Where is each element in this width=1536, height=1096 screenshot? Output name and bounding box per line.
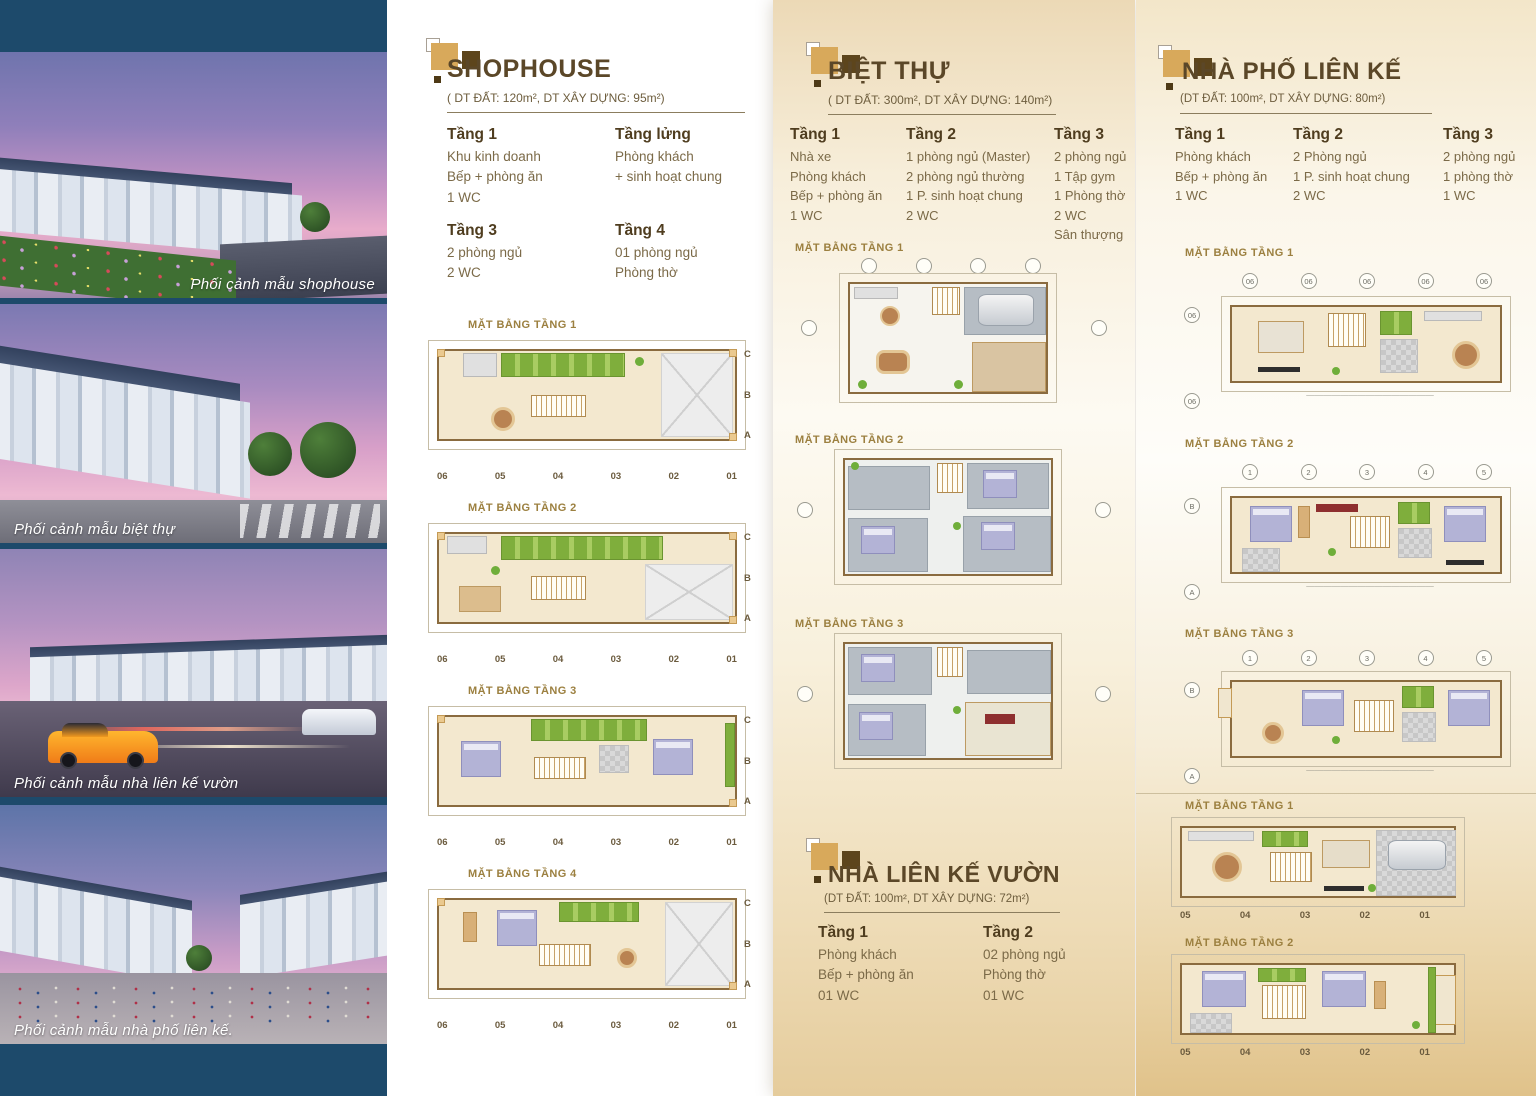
stairs [531, 576, 586, 600]
shophouse-floor-list: Tầng 1 Khu kinh doanh Bếp + phòng ăn 1 W… [447, 126, 755, 283]
floor-title: Tầng 1 [447, 126, 615, 144]
floor-rooms: 02 phòng ngủ Phòng thờ 01 WC [983, 945, 1123, 1006]
car-wheel [127, 752, 144, 769]
photo-shophouse-render: Phối cảnh mẫu shophouse [0, 52, 387, 298]
grid-label: B [744, 756, 751, 767]
grid-axis-numbers: 060504030201 [437, 654, 737, 665]
stairs [1350, 516, 1390, 548]
floor-rooms: Nhà xe Phòng khách Bếp + phòng ăn 1 WC [790, 147, 906, 225]
grid-axis-numbers: 060504030201 [437, 1020, 737, 1031]
plant [953, 522, 961, 530]
grid-label: 06 [1418, 273, 1434, 289]
grid-label: 5 [1476, 464, 1492, 480]
floor-title: Tầng 2 [1293, 126, 1443, 144]
plan-floor [437, 715, 737, 807]
grid-axis-letters: CBA [744, 715, 751, 807]
plan-label: MẶT BẰNG TẦNG 2 [795, 434, 904, 446]
plan-label: MẶT BẰNG TẦNG 3 [1185, 628, 1294, 640]
floor-rooms: Phòng khách Bếp + phòng ăn 1 WC [1175, 147, 1293, 206]
plant [635, 357, 644, 366]
tv-console [1446, 560, 1484, 565]
grid-bubbles-left: BA [1184, 682, 1200, 784]
floor-block: Tầng lửng Phòng khách + sinh hoạt chung [615, 126, 755, 208]
kitchen [1424, 311, 1482, 321]
section-marker [797, 502, 813, 542]
dining-table [1452, 341, 1480, 369]
floorplan-bietthu-t2: MẶT BẰNG TẦNG 2 [773, 432, 1135, 622]
grid-axis-numbers: 060504030201 [437, 471, 737, 482]
dining-table [876, 350, 910, 374]
section-divider [1136, 793, 1536, 794]
bed [983, 470, 1017, 498]
grid-label: 04 [1240, 1047, 1251, 1058]
grid-label: 03 [611, 654, 622, 665]
tiny-square-icon [814, 876, 821, 883]
grid-axis-numbers: 060504030201 [437, 837, 737, 848]
balcony-planter [1428, 967, 1436, 1033]
plan-floor [437, 532, 737, 624]
subtitle-rule [447, 112, 745, 113]
tree [300, 202, 330, 232]
photo-lienkevuon-render: Phối cảnh mẫu nhà liên kế vườn [0, 549, 387, 797]
floorplan-lienkevuon-t2: MẶT BẰNG TẦNG 2 0504030201 [1150, 935, 1536, 1075]
plan-floor [1230, 305, 1502, 383]
grid-label: C [744, 898, 751, 909]
dining-table [1212, 852, 1242, 882]
bed [981, 522, 1015, 550]
grid-label: 01 [1419, 910, 1430, 921]
grid-label: 01 [726, 1020, 737, 1031]
grid-label: 06 [1184, 307, 1200, 323]
section-marker [797, 686, 813, 726]
grid-label: 06 [1301, 273, 1317, 289]
floorplan-bietthu-t1: MẶT BẰNG TẦNG 1 [773, 240, 1135, 430]
grid-label: 03 [611, 837, 622, 848]
bed [497, 910, 537, 946]
floor-block: Tầng 3 2 phòng ngủ 2 WC [447, 222, 615, 284]
plan-floor [437, 349, 737, 441]
nhapho-floor-list: Tầng 1 Phòng khách Bếp + phòng ăn 1 WC T… [1175, 126, 1530, 206]
white-car [302, 709, 376, 735]
photo-nhapho-render: Phối cảnh mẫu nhà phố liên kế. [0, 805, 387, 1044]
dimension-line: ────────────────────────────── [1240, 768, 1500, 774]
plan-floor [437, 898, 737, 990]
photo-caption: Phối cảnh mẫu shophouse [190, 276, 375, 293]
skylight-garden [1258, 968, 1306, 982]
plant [1328, 548, 1336, 556]
grid-label: 05 [495, 471, 506, 482]
grid-label: 03 [611, 471, 622, 482]
section-title-lienkevuon: NHÀ LIÊN KẾ VƯỜN [828, 861, 1060, 888]
stairs [1328, 313, 1366, 347]
plan-label: MẶT BẰNG TẦNG 3 [795, 618, 904, 630]
subtitle-rule [1180, 113, 1432, 114]
dimension-line: ────────────────────────────── [1240, 393, 1500, 399]
floorplan-shophouse-t3: MẶT BẰNG TẦNG 3 060504030201 CBA [420, 681, 755, 856]
grid-label: 06 [437, 471, 448, 482]
bathroom-tile [1402, 712, 1436, 742]
floorplan-shophouse-t1: MẶT BẰNG TẦNG 1 060504030201 CBA [420, 315, 755, 490]
floor-title: Tầng 4 [615, 222, 755, 240]
balcony [1434, 975, 1456, 1025]
plant [954, 380, 963, 389]
section-subtitle: (DT ĐẤT: 100m², DT XÂY DỰNG: 80m²) [1180, 93, 1385, 105]
tiny-square-icon [434, 76, 441, 83]
subtitle-rule [824, 912, 1060, 913]
kitchen [854, 287, 898, 299]
lienkevuon-floor-list: Tầng 1 Phòng khách Bếp + phòng ăn 01 WC … [818, 924, 1128, 1006]
section-marker [801, 320, 817, 360]
photo-bietthu-render: Phối cảnh mẫu biệt thự [0, 304, 387, 543]
plan-floor [843, 642, 1053, 760]
floor-block: Tầng 1 Nhà xe Phòng khách Bếp + phòng ăn… [790, 126, 906, 245]
tv-console [1258, 367, 1300, 372]
grid-label: B [744, 939, 751, 950]
plan-floor [1180, 963, 1456, 1035]
floor-title: Tầng 2 [983, 924, 1123, 942]
floor-block: Tầng 3 2 phòng ngủ 1 phòng thờ 1 WC [1443, 126, 1528, 206]
wall-pier [437, 349, 445, 357]
floor-rooms: 1 phòng ngủ (Master) 2 phòng ngủ thường … [906, 147, 1054, 225]
plant [1368, 884, 1376, 892]
tree [300, 422, 356, 478]
wall-pier [437, 898, 445, 906]
stairs [539, 944, 591, 966]
stairs [1270, 852, 1312, 882]
floorplan-lienkevuon-t1: MẶT BẰNG TẦNG 1 0504030201 [1150, 798, 1536, 938]
grid-label: B [1184, 682, 1200, 698]
grid-label: A [1184, 768, 1200, 784]
floor-rooms: Phòng khách Bếp + phòng ăn 01 WC [818, 945, 983, 1006]
floorplan-nhapho-t2: MẶT BẰNG TẦNG 2 12345 BA ───────────────… [1150, 436, 1536, 616]
grid-label: 04 [553, 1020, 564, 1031]
wall-pier [729, 349, 737, 357]
small-table [880, 306, 900, 326]
altar-table [1262, 722, 1284, 744]
grid-axis-numbers: 0504030201 [1180, 910, 1430, 921]
grid-label: 01 [1419, 1047, 1430, 1058]
floor-rooms: Khu kinh doanh Bếp + phòng ăn 1 WC [447, 147, 615, 208]
bed [859, 712, 893, 740]
bed [861, 526, 895, 554]
tv-console [1324, 886, 1364, 891]
grid-label: 06 [1242, 273, 1258, 289]
kitchen [463, 353, 497, 377]
plant [1332, 367, 1340, 375]
bathroom-tile [1190, 1013, 1232, 1033]
photo-caption: Phối cảnh mẫu biệt thự [14, 521, 175, 538]
garden-strip [531, 719, 647, 741]
balcony [1218, 688, 1232, 718]
crosswalk [240, 504, 380, 538]
grid-label: C [744, 349, 751, 360]
plan-floor [843, 458, 1053, 576]
floor-rooms: 2 phòng ngủ 1 phòng thờ 1 WC [1443, 147, 1528, 206]
grid-label: B [1184, 498, 1200, 514]
floor-rooms: 01 phòng ngủ Phòng thờ [615, 243, 755, 284]
grid-label: 03 [1300, 1047, 1311, 1058]
grid-label: 04 [553, 471, 564, 482]
grid-bubbles [861, 258, 1041, 274]
grid-label: 02 [1360, 1047, 1371, 1058]
photo-caption: Phối cảnh mẫu nhà phố liên kế. [14, 1022, 233, 1039]
study-room [972, 342, 1046, 392]
plant [858, 380, 867, 389]
grid-label: 02 [669, 837, 680, 848]
floorplan-nhapho-t1: MẶT BẰNG TẦNG 1 0606060606 0606 ────────… [1150, 245, 1536, 420]
stairs [1354, 700, 1394, 732]
grid-label: 2 [1301, 650, 1317, 666]
floor-block: Tầng 4 01 phòng ngủ Phòng thờ [615, 222, 755, 284]
brochure-page: Phối cảnh mẫu shophouse Phối cảnh mẫu bi… [0, 0, 1536, 1096]
grid-bubbles-left: 0606 [1184, 307, 1200, 409]
plan-label: MẶT BẰNG TẦNG 2 [468, 502, 577, 514]
grid-axis-letters: CBA [744, 898, 751, 990]
sofa [459, 586, 501, 612]
grid-axis-letters: CBA [744, 349, 751, 441]
grid-label: 05 [1180, 910, 1191, 921]
bathroom-tile [1242, 548, 1280, 572]
floor-title: Tầng 1 [790, 126, 906, 144]
kitchen [1188, 831, 1254, 841]
grid-label: 04 [553, 837, 564, 848]
section-title-shophouse: SHOPHOUSE [447, 55, 611, 84]
grid-label: A [1184, 584, 1200, 600]
grid-label: 4 [1418, 464, 1434, 480]
garden-strip [559, 902, 639, 922]
section-title-bietthu: BIỆT THỰ [828, 57, 950, 86]
car [978, 294, 1034, 326]
grid-label: 01 [726, 471, 737, 482]
grid-label: 06 [437, 1020, 448, 1031]
floor-rooms: 2 phòng ngủ 1 Tập gym 1 Phòng thờ 2 WC S… [1054, 147, 1134, 245]
floorplan-nhapho-t3: MẶT BẰNG TẦNG 3 12345 BA ───────────────… [1150, 626, 1536, 801]
front-yard [661, 353, 733, 437]
section-title-nhapho: NHÀ PHỐ LIÊN KẾ [1182, 58, 1402, 86]
tiny-square-icon [814, 80, 821, 87]
bed [861, 654, 895, 682]
grid-label: A [744, 979, 751, 990]
bed [1444, 506, 1486, 542]
floor-rooms: 2 phòng ngủ 2 WC [447, 243, 615, 284]
grid-label: 05 [495, 837, 506, 848]
grid-label: 05 [495, 1020, 506, 1031]
section-marker [1091, 320, 1107, 360]
wardrobe [463, 912, 477, 942]
orange-sports-car [48, 731, 158, 763]
grid-label: C [744, 715, 751, 726]
plan-floor [848, 282, 1048, 394]
void-open-below [645, 564, 733, 620]
wall-pier [729, 616, 737, 624]
grid-label: 06 [1476, 273, 1492, 289]
wall-pier [437, 715, 445, 723]
living-sofa [1322, 840, 1370, 868]
grid-label: 06 [1359, 273, 1375, 289]
floorplan-shophouse-t4: MẶT BẰNG TẦNG 4 060504030201 CBA [420, 864, 755, 1039]
floorplan-shophouse-t2: MẶT BẰNG TẦNG 2 060504030201 CBA [420, 498, 755, 673]
bathroom-tile [599, 745, 629, 773]
shelf [1316, 504, 1358, 512]
floor-rooms: 2 Phòng ngủ 1 P. sinh hoạt chung 2 WC [1293, 147, 1443, 206]
stairs [932, 287, 960, 315]
car [1388, 840, 1446, 870]
wall-pier [729, 982, 737, 990]
dining-table [491, 407, 515, 431]
bed [1322, 971, 1366, 1007]
grid-label: 03 [611, 1020, 622, 1031]
grid-label: A [744, 430, 751, 441]
grid-label: A [744, 796, 751, 807]
plant [1332, 736, 1340, 744]
bed [461, 741, 501, 777]
floor-rooms: Phòng khách + sinh hoạt chung [615, 147, 755, 188]
floor-title: Tầng 1 [818, 924, 983, 942]
floor-block: Tầng 1 Phòng khách Bếp + phòng ăn 1 WC [1175, 126, 1293, 206]
terrace [665, 902, 733, 986]
gym-room [967, 650, 1051, 694]
bed [1448, 690, 1490, 726]
stairs [937, 647, 963, 677]
dimension-line: ────────────────────────────── [1240, 584, 1500, 590]
pantry [447, 536, 487, 554]
stairs [531, 395, 586, 417]
plan-label: MẶT BẰNG TẦNG 2 [1185, 438, 1294, 450]
grid-label: A [744, 613, 751, 624]
grid-label: 06 [437, 837, 448, 848]
wall-pier [437, 532, 445, 540]
grid-label: 1 [1242, 650, 1258, 666]
floor-title: Tầng 3 [447, 222, 615, 240]
grid-label: 01 [726, 837, 737, 848]
floor-title: Tầng 1 [1175, 126, 1293, 144]
wardrobe [1298, 506, 1310, 538]
floor-block: Tầng 1 Phòng khách Bếp + phòng ăn 01 WC [818, 924, 983, 1006]
worship-room [965, 702, 1051, 756]
altar-table [617, 948, 637, 968]
floor-title: Tầng 3 [1054, 126, 1134, 144]
bietthu-floor-list: Tầng 1 Nhà xe Phòng khách Bếp + phòng ăn… [790, 126, 1135, 245]
skylight-garden [1398, 502, 1430, 524]
section-subtitle: (DT ĐẤT: 100m², DT XÂY DỰNG: 72m²) [824, 893, 1029, 905]
plan-label: MẶT BẰNG TẦNG 1 [1185, 800, 1294, 812]
section-subtitle: ( DT ĐẤT: 300m², DT XÂY DỰNG: 140m²) [828, 93, 1052, 107]
stairs [1262, 985, 1306, 1019]
floor-block: Tầng 2 02 phòng ngủ Phòng thờ 01 WC [983, 924, 1123, 1006]
floor-block: Tầng 3 2 phòng ngủ 1 Tập gym 1 Phòng thờ… [1054, 126, 1134, 245]
grid-label: C [744, 532, 751, 543]
bedroom-suite [1258, 321, 1304, 353]
car-wheel [60, 752, 77, 769]
garden-strip [501, 536, 663, 560]
subtitle-rule [828, 114, 1056, 115]
plan-label: MẶT BẰNG TẦNG 4 [468, 868, 577, 880]
grid-axis-numbers: 0504030201 [1180, 1047, 1430, 1058]
tree [186, 945, 212, 971]
section-subtitle: ( DT ĐẤT: 120m², DT XÂY DỰNG: 95m²) [447, 91, 665, 105]
balcony-planter [725, 723, 735, 787]
floorplan-bietthu-t3: MẶT BẰNG TẦNG 3 [773, 616, 1135, 806]
section-marker [1095, 686, 1111, 726]
plant [491, 566, 500, 575]
plant [953, 706, 961, 714]
pedestrians [10, 985, 380, 1025]
grid-label: 05 [495, 654, 506, 665]
grid-label: 01 [726, 654, 737, 665]
tree [248, 432, 292, 476]
bedroom [848, 466, 930, 510]
plan-label: MẶT BẰNG TẦNG 1 [1185, 247, 1294, 259]
floor-title: Tầng 3 [1443, 126, 1528, 144]
wardrobe [1374, 981, 1386, 1009]
floor-title: Tầng 2 [906, 126, 1054, 144]
grid-label: 02 [669, 654, 680, 665]
plan-label: MẶT BẰNG TẦNG 2 [1185, 937, 1294, 949]
plan-label: MẶT BẰNG TẦNG 1 [795, 242, 904, 254]
grid-label: 05 [1180, 1047, 1191, 1058]
grid-label: 3 [1359, 464, 1375, 480]
stairs [534, 757, 586, 779]
skylight-garden [1380, 311, 1412, 335]
plan-floor [1230, 496, 1502, 574]
grid-label: 04 [1240, 910, 1251, 921]
grid-bubbles-left: BA [1184, 498, 1200, 600]
plan-label: MẶT BẰNG TẦNG 1 [468, 319, 577, 331]
grid-label: B [744, 390, 751, 401]
section-marker [1095, 502, 1111, 542]
grid-label: 03 [1300, 910, 1311, 921]
bed [653, 739, 693, 775]
floor-block: Tầng 1 Khu kinh doanh Bếp + phòng ăn 1 W… [447, 126, 615, 208]
plan-label: MẶT BẰNG TẦNG 3 [468, 685, 577, 697]
wall-pier [729, 799, 737, 807]
stairs [937, 463, 963, 493]
bathroom-tile [1380, 339, 1418, 373]
plan-floor [1230, 680, 1502, 758]
tiny-square-icon [1166, 83, 1173, 90]
floor-block: Tầng 2 2 Phòng ngủ 1 P. sinh hoạt chung … [1293, 126, 1443, 206]
bed [1250, 506, 1292, 542]
bed [1302, 690, 1344, 726]
grid-label: 04 [553, 654, 564, 665]
wall-pier [729, 433, 737, 441]
grid-bubbles-top: 0606060606 [1242, 273, 1492, 289]
grid-bubbles-top: 12345 [1242, 650, 1492, 666]
bed [1202, 971, 1246, 1007]
plant [1412, 1021, 1420, 1029]
grid-axis-letters: CBA [744, 532, 751, 624]
grid-label: 06 [437, 654, 448, 665]
grid-label: 02 [669, 471, 680, 482]
grid-label: 02 [669, 1020, 680, 1031]
bathroom-tile [1398, 528, 1432, 558]
grid-bubbles-top: 12345 [1242, 464, 1492, 480]
grid-label: 02 [1360, 910, 1371, 921]
floor-block: Tầng 2 1 phòng ngủ (Master) 2 phòng ngủ … [906, 126, 1054, 245]
grid-label: 5 [1476, 650, 1492, 666]
grid-label: 3 [1359, 650, 1375, 666]
gym-equipment [985, 714, 1015, 724]
grid-label: 06 [1184, 393, 1200, 409]
wall-pier [729, 532, 737, 540]
grid-label: 4 [1418, 650, 1434, 666]
skylight-garden [1402, 686, 1434, 708]
grid-label: B [744, 573, 751, 584]
floor-title: Tầng lửng [615, 126, 755, 144]
photo-strip: Phối cảnh mẫu shophouse Phối cảnh mẫu bi… [0, 0, 387, 1096]
photo-caption: Phối cảnh mẫu nhà liên kế vườn [14, 775, 238, 792]
grid-label: 1 [1242, 464, 1258, 480]
